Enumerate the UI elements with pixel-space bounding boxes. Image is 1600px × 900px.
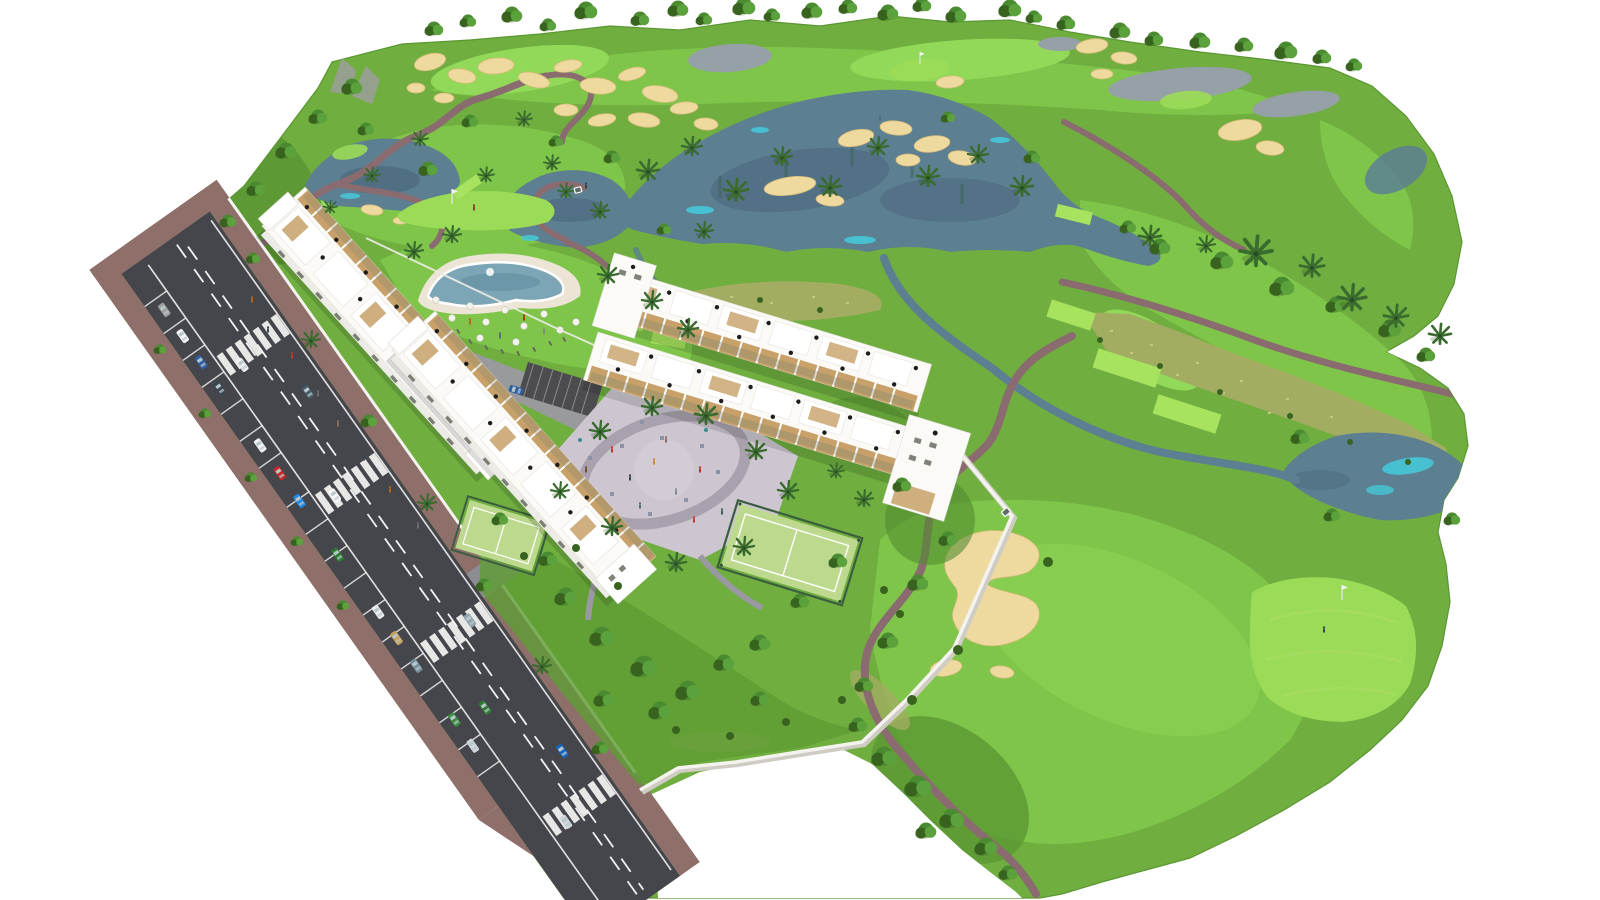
tree — [945, 7, 966, 24]
tree — [732, 0, 755, 16]
tree — [1025, 10, 1042, 23]
tree — [539, 18, 556, 31]
palm-tree — [1429, 324, 1451, 344]
tree — [459, 14, 476, 27]
tree — [1056, 15, 1075, 30]
tree — [574, 2, 597, 20]
tree — [1144, 31, 1163, 46]
tree — [501, 7, 522, 24]
tree — [1274, 42, 1297, 60]
tree — [877, 5, 898, 22]
tree — [630, 11, 649, 26]
tree — [1443, 512, 1460, 525]
tree — [1109, 23, 1130, 40]
tree — [667, 1, 688, 18]
tree — [801, 3, 822, 20]
tree — [1234, 37, 1253, 52]
tree — [763, 8, 780, 21]
tree — [1312, 49, 1331, 64]
tree — [912, 0, 931, 12]
tree — [1189, 33, 1210, 50]
tree — [998, 0, 1021, 18]
tree — [838, 0, 857, 14]
aerial-render: Aerial 3D masterplan rendering of a golf… — [0, 0, 1600, 900]
pool-island-deck — [486, 268, 494, 276]
tree — [1416, 347, 1435, 362]
tree — [695, 12, 712, 25]
tree — [424, 21, 443, 36]
tree — [1345, 58, 1362, 71]
